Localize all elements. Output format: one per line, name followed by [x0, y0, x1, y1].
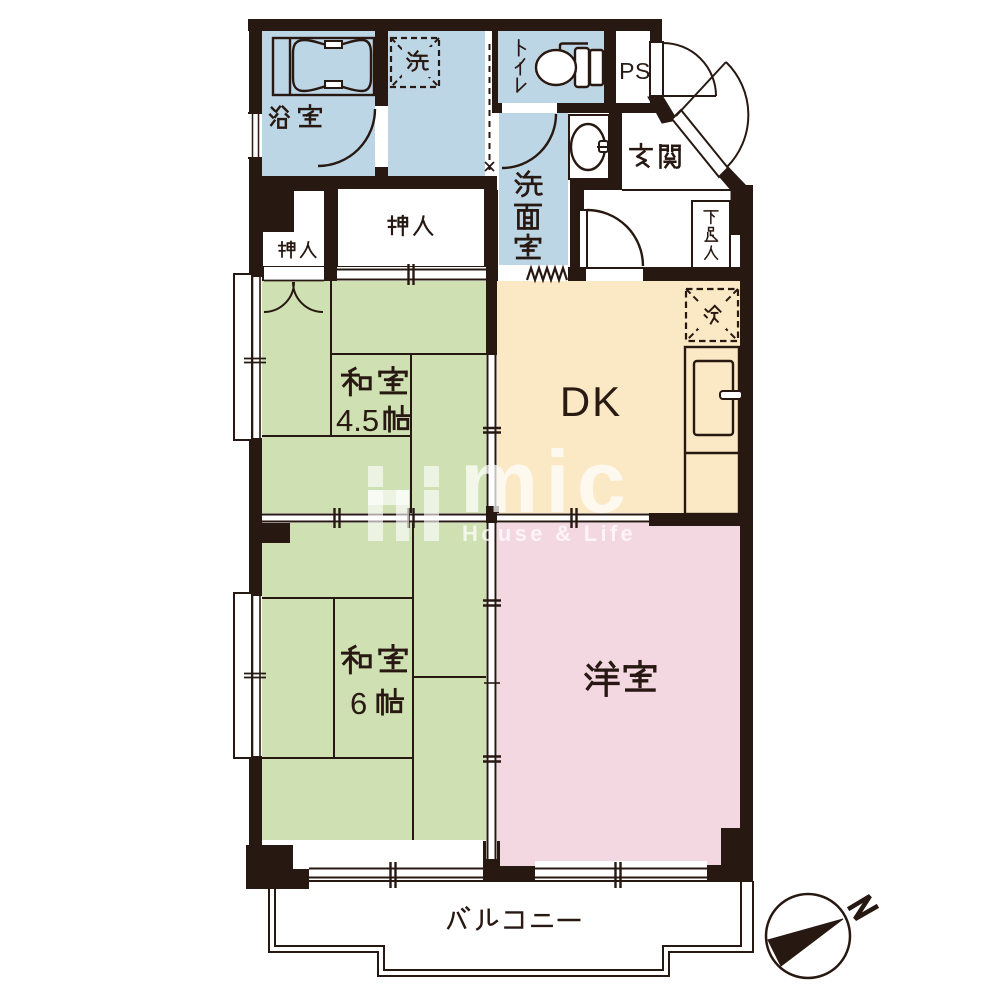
svg-text:4.5: 4.5	[336, 403, 379, 438]
svg-text:House & Life: House & Life	[462, 521, 636, 546]
svg-text:mic: mic	[460, 432, 633, 531]
svg-text:DK: DK	[560, 378, 622, 425]
svg-text:PS: PS	[619, 58, 651, 84]
svg-text:6: 6	[350, 686, 367, 721]
